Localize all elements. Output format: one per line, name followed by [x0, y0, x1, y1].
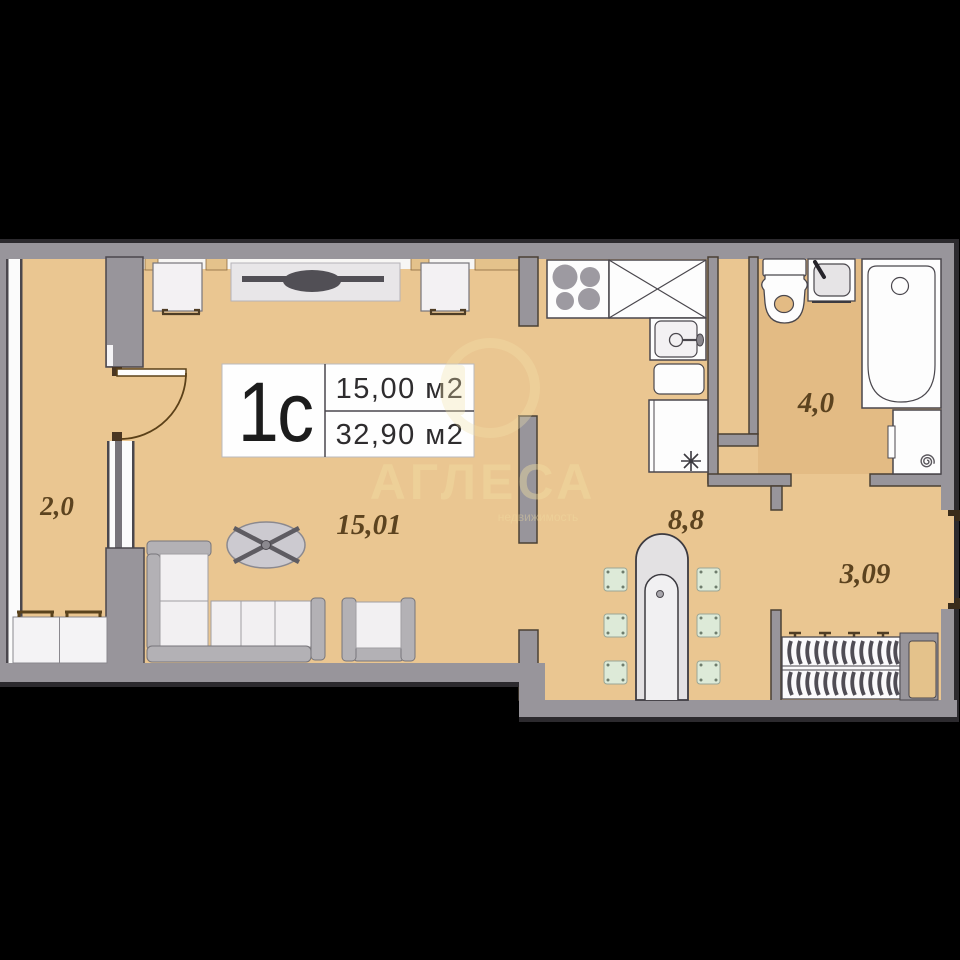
svg-text:4,0: 4,0	[797, 387, 834, 419]
svg-text:недвижимость: недвижимость	[498, 510, 579, 524]
svg-text:2,0: 2,0	[39, 491, 74, 521]
svg-text:8,8: 8,8	[668, 504, 705, 536]
svg-text:1с: 1с	[238, 365, 313, 459]
svg-text:15,01: 15,01	[336, 509, 401, 541]
svg-text:3,09: 3,09	[839, 558, 891, 590]
svg-text:АГЛЕСА: АГЛЕСА	[370, 454, 597, 510]
svg-text:32,90 м2: 32,90 м2	[336, 419, 465, 451]
